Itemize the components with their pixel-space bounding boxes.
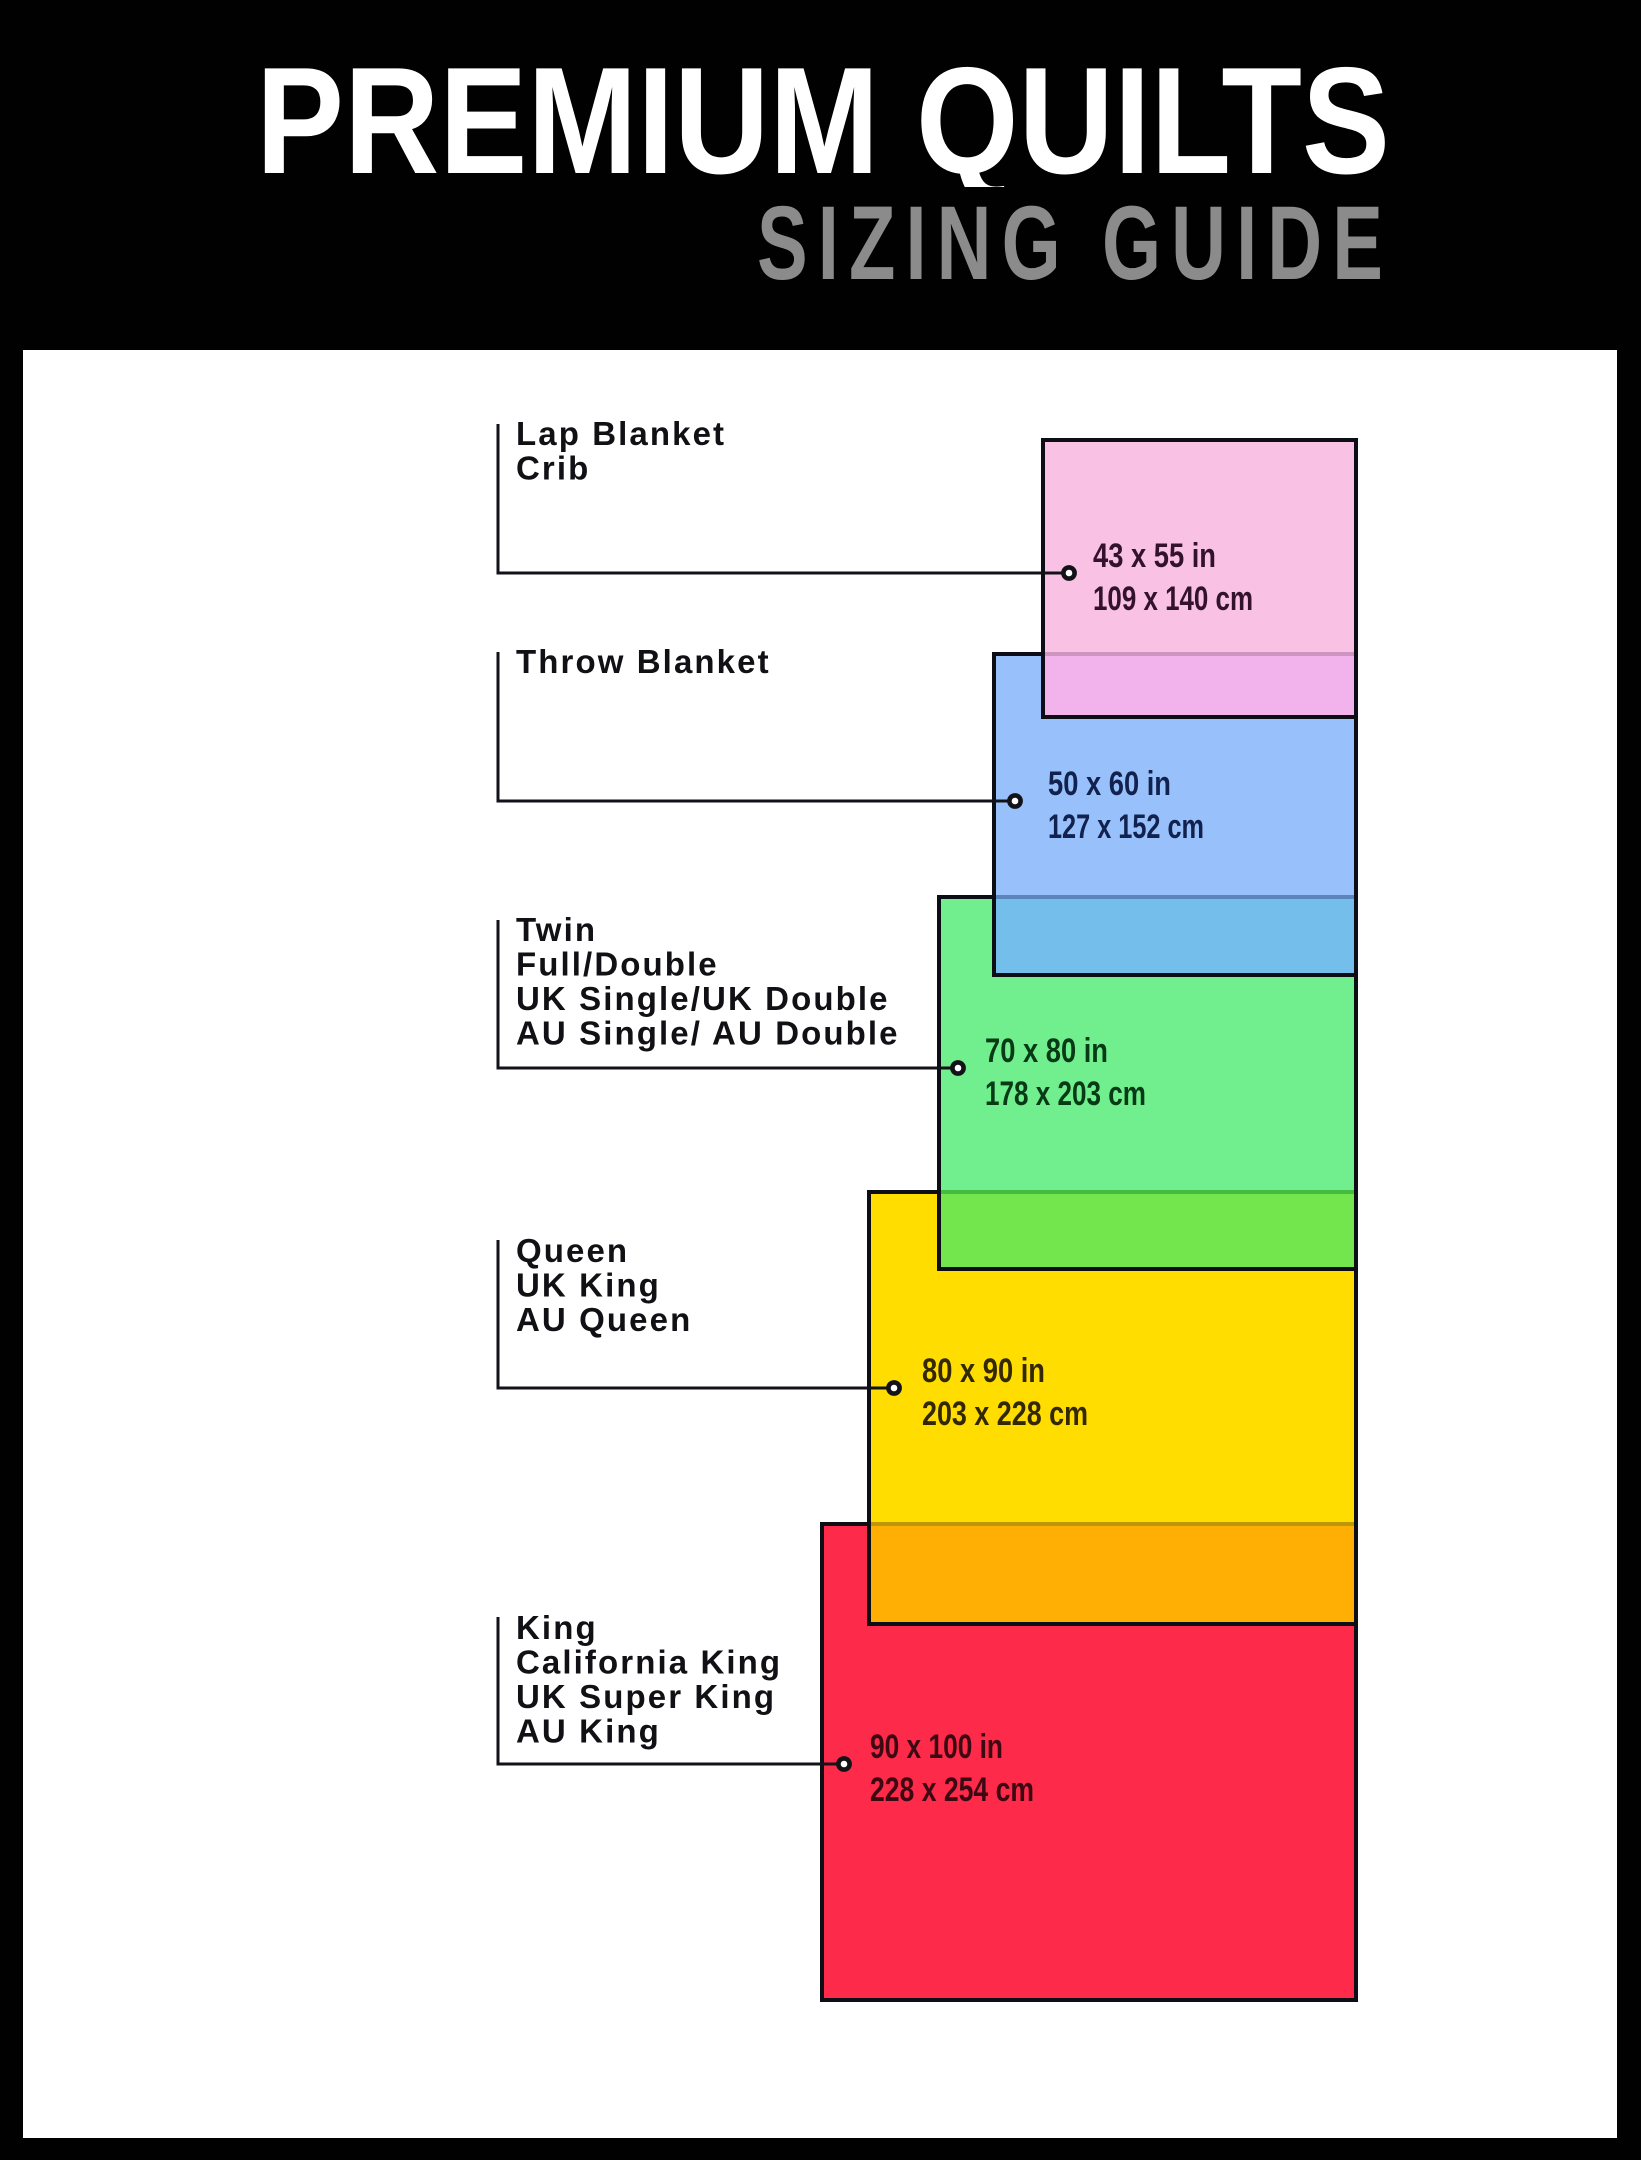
svg-text:80 x 90 in: 80 x 90 in xyxy=(922,1352,1045,1390)
svg-text:Lap Blanket: Lap Blanket xyxy=(516,415,726,452)
svg-text:California King: California King xyxy=(516,1644,782,1681)
svg-text:127 x 152 cm: 127 x 152 cm xyxy=(1048,808,1204,846)
svg-text:UK King: UK King xyxy=(516,1267,661,1304)
svg-text:PREMIUM QUILTS: PREMIUM QUILTS xyxy=(256,36,1390,206)
svg-text:AU Queen: AU Queen xyxy=(516,1301,692,1338)
svg-text:43 x 55 in: 43 x 55 in xyxy=(1093,537,1216,575)
svg-text:178 x 203 cm: 178 x 203 cm xyxy=(985,1075,1146,1113)
svg-text:Throw Blanket: Throw Blanket xyxy=(516,643,771,680)
svg-text:Queen: Queen xyxy=(516,1232,629,1269)
svg-text:Crib: Crib xyxy=(516,450,590,487)
svg-text:Full/Double: Full/Double xyxy=(516,946,719,983)
svg-text:AU Single/ AU Double: AU Single/ AU Double xyxy=(516,1015,900,1052)
svg-text:SIZING GUIDE: SIZING GUIDE xyxy=(757,185,1393,302)
svg-text:203 x 228 cm: 203 x 228 cm xyxy=(922,1395,1088,1433)
svg-text:AU King: AU King xyxy=(516,1713,661,1750)
svg-text:109 x 140 cm: 109 x 140 cm xyxy=(1093,580,1253,618)
svg-text:UK Single/UK Double: UK Single/UK Double xyxy=(516,980,890,1017)
svg-text:Twin: Twin xyxy=(516,911,597,948)
svg-text:King: King xyxy=(516,1609,598,1646)
svg-text:50 x 60 in: 50 x 60 in xyxy=(1048,765,1171,803)
svg-text:228 x 254 cm: 228 x 254 cm xyxy=(870,1771,1034,1809)
svg-text:70 x 80 in: 70 x 80 in xyxy=(985,1032,1108,1070)
svg-text:90 x 100 in: 90 x 100 in xyxy=(870,1728,1003,1766)
svg-text:UK Super King: UK Super King xyxy=(516,1678,776,1715)
